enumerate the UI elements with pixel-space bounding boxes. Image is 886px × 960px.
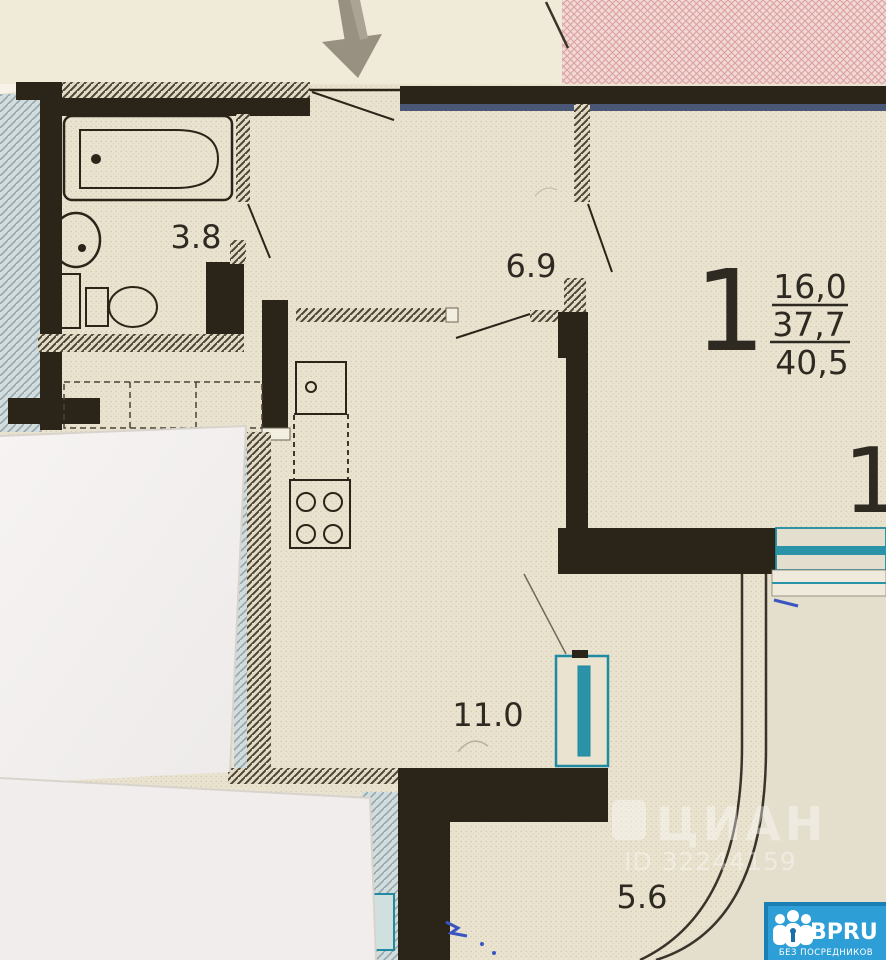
total-area-value: 40,5: [775, 343, 848, 382]
bathroom-area-label: 3.8: [171, 218, 222, 256]
white-paper-bottom: [0, 778, 376, 960]
watermark-id: ID 32244159: [624, 847, 797, 876]
sink-drain: [78, 244, 86, 252]
edge-partial-label: 1: [843, 429, 886, 534]
badge-tagline: БЕЗ ПОСРЕДНИКОВ: [779, 948, 873, 958]
pen-dot: [480, 942, 484, 946]
living-window-band: [776, 546, 886, 555]
bpru-people-icon: [773, 910, 813, 947]
area-no-balcony-value: 37,7: [772, 305, 845, 344]
neighbor-area-pink: [546, 0, 886, 84]
balcony-area-label: 5.6: [617, 878, 668, 916]
floor-plan-drawing: 3.8 6.9 11.0 5.6 1 16,0 37,7 40,5 1 ЦИАН…: [0, 0, 886, 960]
top-wall-hatch: [60, 82, 310, 98]
badge-brand: BPRU: [810, 920, 878, 945]
balcony-door-bar: [578, 666, 590, 756]
watermark: ЦИАН ID 32244159: [612, 797, 827, 876]
stairwell-hatch: [0, 94, 42, 432]
balcony-door-tick: [572, 650, 588, 658]
living-area-value: 16,0: [773, 267, 846, 306]
rooms-count: 1: [694, 247, 765, 377]
hallway-area-label: 6.9: [506, 247, 557, 285]
bathtub-drain: [91, 154, 101, 164]
kitchen-area-label: 11.0: [452, 696, 523, 734]
white-paper-top: [0, 426, 246, 784]
watermark-brand: ЦИАН: [656, 797, 827, 851]
wall-shadow: [400, 104, 886, 111]
cian-logo-icon: [612, 800, 646, 840]
pen-dot: [492, 951, 496, 955]
floor-plan-photo: 3.8 6.9 11.0 5.6 1 16,0 37,7 40,5 1 ЦИАН…: [0, 0, 886, 960]
bpru-badge: BPRU БЕЗ ПОСРЕДНИКОВ: [764, 902, 886, 960]
